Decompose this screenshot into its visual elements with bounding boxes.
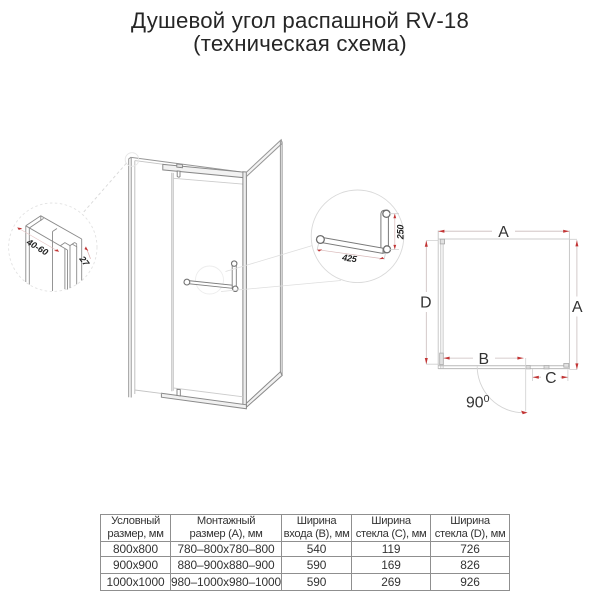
svg-text:C: C xyxy=(545,370,556,387)
svg-text:A: A xyxy=(572,299,583,316)
svg-text:D: D xyxy=(420,295,431,312)
svg-text:250: 250 xyxy=(396,225,406,241)
svg-text:425: 425 xyxy=(341,252,359,264)
svg-text:40-60: 40-60 xyxy=(24,236,50,257)
svg-text:A: A xyxy=(498,224,509,241)
svg-text:900: 900 xyxy=(466,393,490,412)
svg-text:27: 27 xyxy=(77,253,92,269)
svg-text:B: B xyxy=(479,351,490,368)
